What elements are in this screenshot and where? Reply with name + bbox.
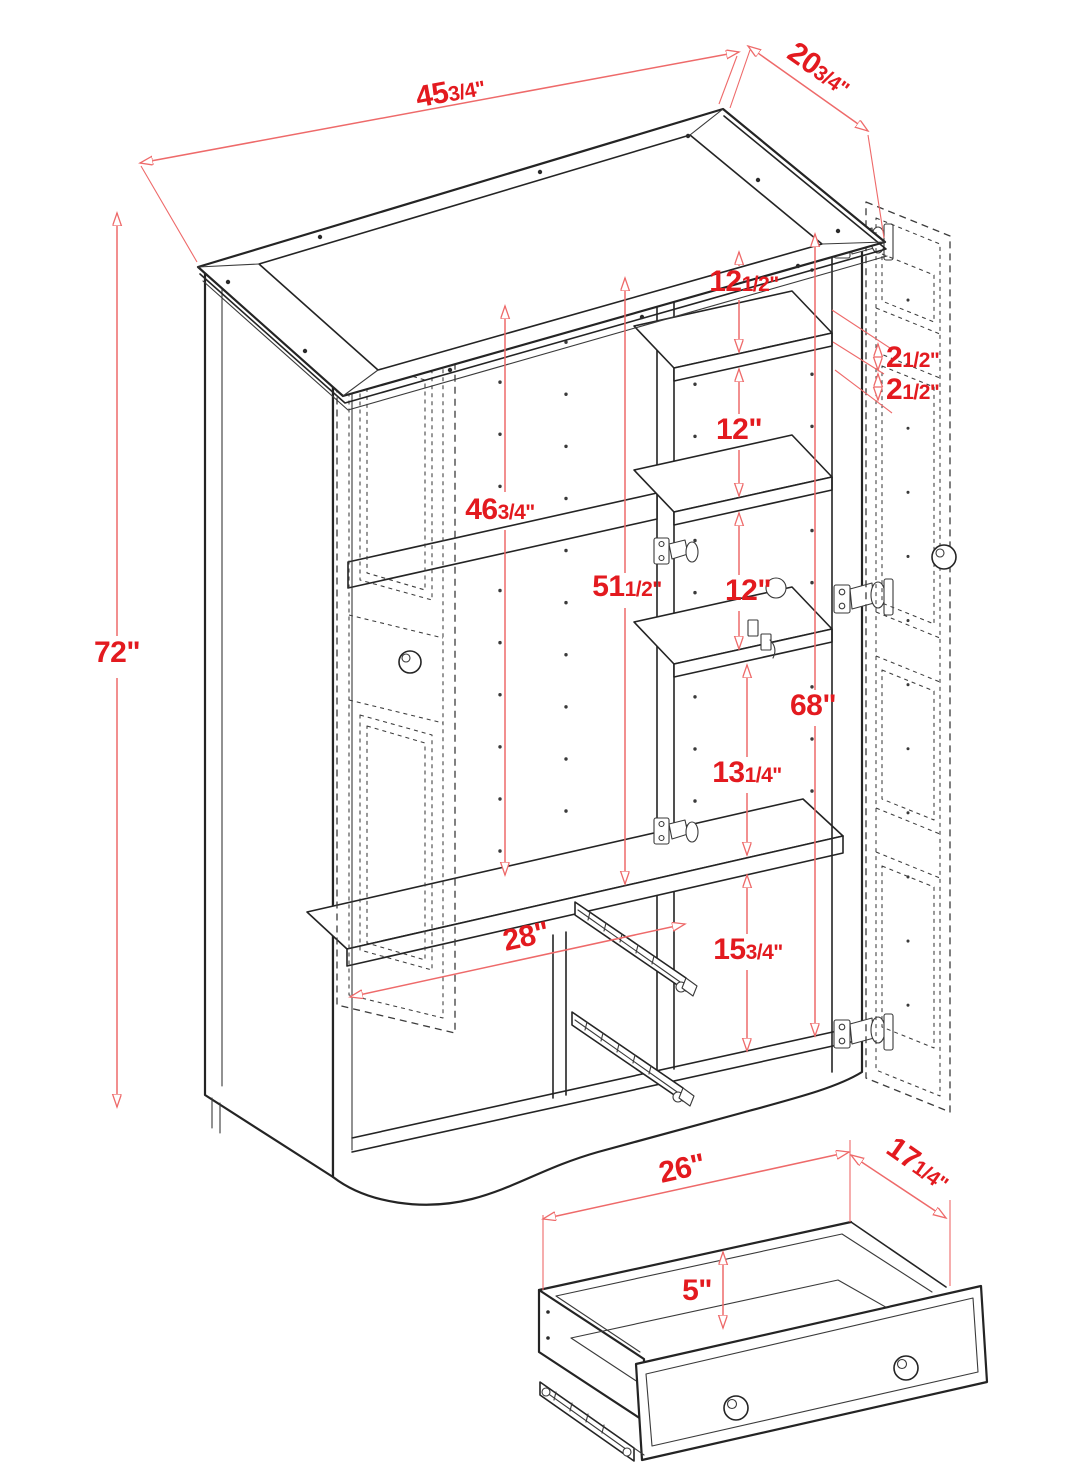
left-door-knob (399, 651, 421, 673)
drawer-knob (724, 1396, 748, 1420)
left-side-panel (205, 272, 333, 1177)
dim-drawer-width-label: 26" (656, 1148, 708, 1190)
right-door-knob (932, 545, 956, 569)
dim-drawer-depth-label: 171/4" (881, 1131, 957, 1198)
dim-shelf-gap-upper-label: 12" (716, 413, 762, 446)
right-door-ghost (866, 202, 956, 1112)
wardrobe-dimension-diagram: 453/4" 203/4" 72" 463/4" 511/2" 121/2" 1… (0, 0, 1080, 1470)
diagram-canvas: 453/4" 203/4" 72" 463/4" 511/2" 121/2" 1… (0, 0, 1080, 1470)
dim-shelf-gap-mid-label: 12" (725, 574, 771, 607)
dim-height-label: 72" (94, 636, 140, 669)
dim-door-gap-a-label: 21/2" (886, 341, 939, 374)
drawer-detail (539, 1222, 987, 1461)
dim-right-interior-label: 68" (790, 689, 836, 722)
dim-top-depth-label: 203/4" (782, 36, 858, 103)
cabinet-front (333, 243, 862, 1205)
dim-drawer-height-label: 5" (682, 1274, 712, 1307)
dim-top-width-label: 453/4" (413, 69, 487, 114)
drawer-knob (894, 1356, 918, 1380)
